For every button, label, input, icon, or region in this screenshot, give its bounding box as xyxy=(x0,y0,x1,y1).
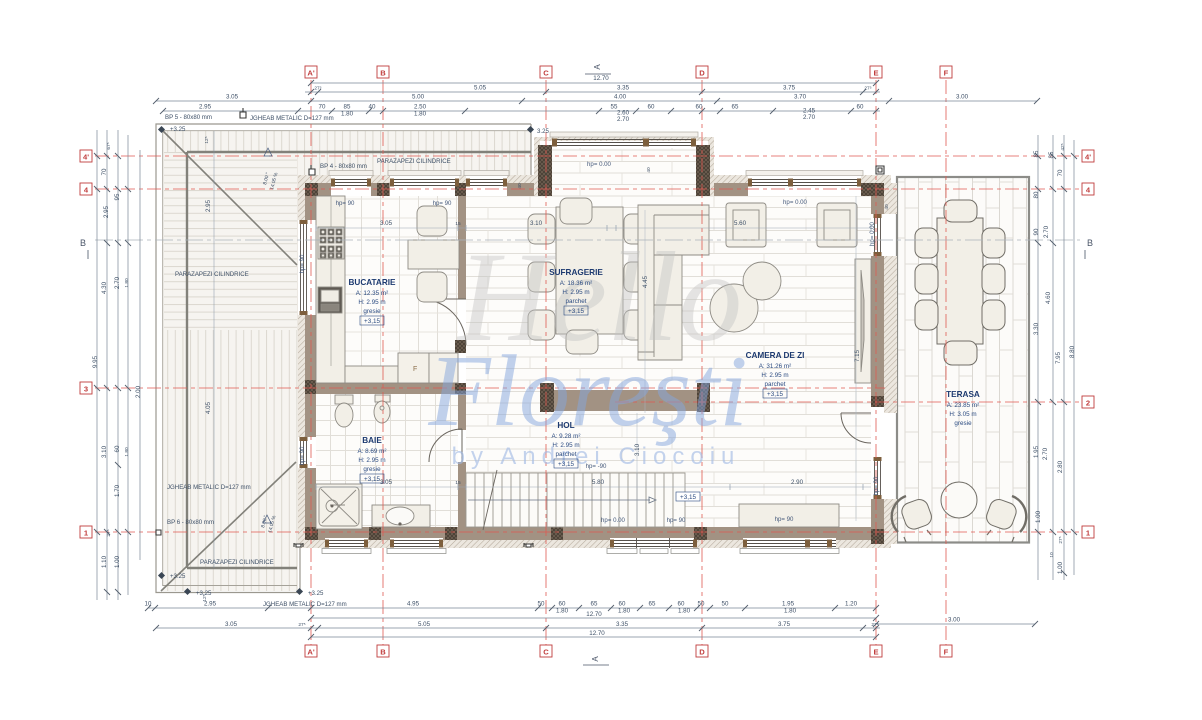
svg-text:4.95: 4.95 xyxy=(407,601,420,608)
svg-text:70: 70 xyxy=(319,104,326,111)
svg-text:hp= 0.00: hp= 0.00 xyxy=(869,221,876,246)
svg-text:3.05: 3.05 xyxy=(225,621,238,628)
svg-text:HOL: HOL xyxy=(557,421,574,430)
svg-text:1.80: 1.80 xyxy=(678,608,691,615)
svg-text:hp= 90: hp= 90 xyxy=(299,254,306,273)
svg-text:parchet: parchet xyxy=(555,451,576,458)
svg-text:+3,15: +3,15 xyxy=(767,391,783,398)
svg-text:F: F xyxy=(944,648,949,657)
svg-text:3.05: 3.05 xyxy=(380,479,393,486)
svg-text:3: 3 xyxy=(84,385,88,394)
svg-text:4.05: 4.05 xyxy=(205,401,212,414)
svg-text:7.95: 7.95 xyxy=(1055,351,1062,364)
svg-text:60: 60 xyxy=(619,601,626,608)
svg-text:3.00: 3.00 xyxy=(956,94,969,101)
svg-text:50: 50 xyxy=(538,601,545,608)
svg-text:4.00: 4.00 xyxy=(614,94,627,101)
svg-text:2.95: 2.95 xyxy=(204,601,217,608)
svg-text:27⁵: 27⁵ xyxy=(864,86,871,92)
svg-text:1.80: 1.80 xyxy=(556,608,569,615)
svg-text:+3,15: +3,15 xyxy=(680,494,696,501)
svg-text:2.80: 2.80 xyxy=(1057,460,1064,473)
svg-text:60: 60 xyxy=(114,445,121,452)
svg-text:parchet: parchet xyxy=(764,381,785,388)
svg-text:40: 40 xyxy=(884,204,890,210)
svg-text:10: 10 xyxy=(1049,552,1055,558)
svg-text:H: 2.95 m: H: 2.95 m xyxy=(761,372,788,379)
svg-text:2.95: 2.95 xyxy=(103,205,110,218)
svg-text:H: 2.95 m: H: 2.95 m xyxy=(358,299,385,306)
svg-text:4.30: 4.30 xyxy=(101,281,108,294)
svg-text:JGHEAB METALIC D=127 mm: JGHEAB METALIC D=127 mm xyxy=(250,115,334,122)
svg-text:hp= 90: hp= 90 xyxy=(299,446,306,465)
svg-text:1.80: 1.80 xyxy=(618,608,631,615)
svg-text:5.05: 5.05 xyxy=(474,85,487,92)
svg-text:E: E xyxy=(873,648,878,657)
svg-text:TERASA: TERASA xyxy=(946,390,980,399)
svg-text:CAMERA DE ZI: CAMERA DE ZI xyxy=(746,351,805,360)
svg-text:A: A xyxy=(593,64,602,70)
svg-text:50: 50 xyxy=(722,601,729,608)
svg-text:12.70: 12.70 xyxy=(589,630,605,637)
svg-text:27⁵: 27⁵ xyxy=(1058,536,1064,543)
svg-text:H: 2.95 m: H: 2.95 m xyxy=(358,457,385,464)
svg-text:85: 85 xyxy=(1033,150,1040,157)
svg-text:2.70: 2.70 xyxy=(1043,225,1050,238)
svg-text:1.95: 1.95 xyxy=(782,601,795,608)
svg-text:hp= 90: hp= 90 xyxy=(336,200,355,207)
svg-text:hp= 90: hp= 90 xyxy=(667,517,686,524)
svg-text:40: 40 xyxy=(369,104,376,111)
svg-text:27⁵: 27⁵ xyxy=(314,86,321,92)
svg-text:SUFRAGERIE: SUFRAGERIE xyxy=(549,268,603,277)
svg-text:D: D xyxy=(699,648,705,657)
svg-text:2: 2 xyxy=(1086,399,1090,408)
svg-text:hp= 0.00: hp= 0.00 xyxy=(587,161,612,168)
svg-text:A: A xyxy=(591,656,600,662)
svg-text:B: B xyxy=(380,648,386,657)
svg-text:2.50: 2.50 xyxy=(414,104,427,111)
svg-text:60: 60 xyxy=(559,601,566,608)
svg-text:1.00: 1.00 xyxy=(114,555,121,568)
svg-text:9.95: 9.95 xyxy=(92,355,99,368)
svg-text:PARAZAPEZI CILINDRICE: PARAZAPEZI CILINDRICE xyxy=(377,158,451,165)
svg-text:1.80: 1.80 xyxy=(784,608,797,615)
svg-text:15: 15 xyxy=(455,480,461,486)
svg-text:gresie: gresie xyxy=(363,466,381,473)
svg-text:B: B xyxy=(80,238,86,248)
svg-text:+3,15: +3,15 xyxy=(558,461,574,468)
svg-text:+3,15: +3,15 xyxy=(364,318,380,325)
svg-text:40: 40 xyxy=(517,183,523,189)
svg-text:8.80: 8.80 xyxy=(1069,345,1076,358)
svg-text:+3.25: +3.25 xyxy=(170,126,186,133)
svg-text:B: B xyxy=(1087,238,1093,248)
svg-text:A: 23.85 m²: A: 23.85 m² xyxy=(947,402,980,409)
svg-text:12.70: 12.70 xyxy=(586,611,602,618)
svg-text:2.70: 2.70 xyxy=(803,114,816,121)
svg-text:3.25: 3.25 xyxy=(537,128,549,135)
svg-text:4': 4' xyxy=(83,153,89,162)
svg-text:1.20: 1.20 xyxy=(845,601,858,608)
svg-text:C: C xyxy=(543,69,549,78)
svg-text:hp= -90: hp= -90 xyxy=(586,463,607,470)
svg-text:60: 60 xyxy=(696,104,703,111)
svg-text:85: 85 xyxy=(344,104,351,111)
svg-text:+3.25: +3.25 xyxy=(170,573,186,580)
svg-text:hp= 90: hp= 90 xyxy=(433,200,452,207)
svg-text:60: 60 xyxy=(857,104,864,111)
svg-text:C: C xyxy=(543,648,549,657)
svg-text:H: 2.95 m: H: 2.95 m xyxy=(562,289,589,296)
svg-text:60: 60 xyxy=(678,601,685,608)
svg-text:F: F xyxy=(944,69,949,78)
svg-text:A: 12.35 m²: A: 12.35 m² xyxy=(356,290,389,297)
svg-text:7.15: 7.15 xyxy=(854,349,861,362)
svg-text:2.00: 2.00 xyxy=(135,385,142,398)
svg-text:3.35: 3.35 xyxy=(617,85,630,92)
svg-text:3.75: 3.75 xyxy=(778,621,791,628)
svg-text:E: E xyxy=(873,69,878,78)
svg-text:A: 8.69 m²: A: 8.69 m² xyxy=(357,448,386,455)
svg-text:gresie: gresie xyxy=(363,308,381,315)
svg-text:gresie: gresie xyxy=(954,420,972,427)
svg-text:BP 6 - 80x80 mm: BP 6 - 80x80 mm xyxy=(167,519,214,526)
svg-text:parchet: parchet xyxy=(565,298,586,305)
svg-text:50: 50 xyxy=(698,601,705,608)
svg-text:90: 90 xyxy=(1033,228,1040,235)
svg-text:3.00: 3.00 xyxy=(948,617,961,624)
svg-text:80: 80 xyxy=(1033,191,1040,198)
svg-text:H: 3.05 m: H: 3.05 m xyxy=(949,411,976,418)
svg-text:70: 70 xyxy=(101,168,108,175)
svg-text:BP 4 - 80x80 mm: BP 4 - 80x80 mm xyxy=(320,163,367,170)
svg-text:65: 65 xyxy=(649,601,656,608)
svg-text:BP 5 - 80x80 mm: BP 5 - 80x80 mm xyxy=(165,114,212,121)
svg-text:hp= 90: hp= 90 xyxy=(775,516,794,523)
svg-text:40: 40 xyxy=(646,167,652,173)
svg-text:1.70: 1.70 xyxy=(114,484,121,497)
svg-text:Floreşti: Floreşti xyxy=(427,335,747,448)
svg-text:PARAZAPEZI CILINDRICE: PARAZAPEZI CILINDRICE xyxy=(200,559,274,566)
svg-text:27⁵: 27⁵ xyxy=(871,622,878,628)
svg-text:+3.25: +3.25 xyxy=(308,590,324,597)
svg-text:JGHEAB METALIC D=127 mm: JGHEAB METALIC D=127 mm xyxy=(167,484,251,491)
svg-text:hp= 90: hp= 90 xyxy=(873,476,880,495)
svg-text:1.80: 1.80 xyxy=(124,278,130,288)
svg-text:A: 18.36 m²: A: 18.36 m² xyxy=(560,280,593,287)
svg-text:12.70: 12.70 xyxy=(593,75,609,82)
svg-text:65: 65 xyxy=(732,104,739,111)
svg-text:5.60: 5.60 xyxy=(734,220,747,227)
svg-text:27⁵: 27⁵ xyxy=(106,529,112,536)
svg-text:27⁵: 27⁵ xyxy=(298,622,305,628)
svg-text:3.05: 3.05 xyxy=(380,220,393,227)
svg-text:3.10: 3.10 xyxy=(634,443,641,456)
svg-text:4': 4' xyxy=(1085,153,1091,162)
svg-text:BUCATARIE: BUCATARIE xyxy=(349,278,397,287)
svg-text:5.05: 5.05 xyxy=(418,621,431,628)
svg-text:BAIE: BAIE xyxy=(362,436,382,445)
svg-text:JGHEAB METALIC D=127 mm: JGHEAB METALIC D=127 mm xyxy=(263,601,347,608)
svg-text:A: 31.26 m²: A: 31.26 m² xyxy=(759,363,792,370)
svg-text:3.10: 3.10 xyxy=(530,220,543,227)
svg-text:D: D xyxy=(699,69,705,78)
svg-text:A': A' xyxy=(307,648,314,657)
svg-text:15: 15 xyxy=(455,221,461,227)
svg-text:+3,15: +3,15 xyxy=(568,308,584,315)
svg-text:3.35: 3.35 xyxy=(616,621,629,628)
svg-text:1.00: 1.00 xyxy=(1057,561,1064,574)
svg-text:2.70: 2.70 xyxy=(617,116,630,123)
svg-text:hp= 0.00: hp= 0.00 xyxy=(783,199,808,206)
svg-text:2.70: 2.70 xyxy=(1042,447,1049,460)
svg-text:F: F xyxy=(413,366,417,373)
svg-text:4.45: 4.45 xyxy=(642,275,649,288)
svg-text:5.00: 5.00 xyxy=(412,94,425,101)
svg-text:42⁵: 42⁵ xyxy=(1060,143,1066,150)
svg-text:67⁵: 67⁵ xyxy=(106,142,112,149)
svg-text:hp= 0.00: hp= 0.00 xyxy=(601,517,626,524)
svg-text:3.70: 3.70 xyxy=(794,94,807,101)
svg-text:1.10: 1.10 xyxy=(101,555,108,568)
svg-text:12⁵: 12⁵ xyxy=(204,136,210,143)
svg-text:3.05: 3.05 xyxy=(226,94,239,101)
svg-text:A: 9.28 m²: A: 9.28 m² xyxy=(551,433,580,440)
svg-text:+3.25: +3.25 xyxy=(196,590,212,597)
svg-text:A': A' xyxy=(307,69,314,78)
svg-text:1.80: 1.80 xyxy=(414,111,427,118)
svg-text:1.00: 1.00 xyxy=(1035,510,1042,523)
svg-text:2.90: 2.90 xyxy=(791,479,804,486)
svg-text:2.95: 2.95 xyxy=(199,104,212,111)
svg-text:2.70: 2.70 xyxy=(114,276,121,289)
svg-text:1.80: 1.80 xyxy=(341,111,354,118)
svg-text:60: 60 xyxy=(648,104,655,111)
svg-text:10: 10 xyxy=(145,601,152,608)
svg-text:65: 65 xyxy=(591,601,598,608)
svg-text:3.10: 3.10 xyxy=(101,445,108,458)
svg-text:2.95: 2.95 xyxy=(205,199,212,212)
svg-text:3.30: 3.30 xyxy=(1033,322,1040,335)
svg-text:70: 70 xyxy=(1057,169,1064,176)
svg-text:PARAZAPEZI CILINDRICE: PARAZAPEZI CILINDRICE xyxy=(175,271,249,278)
svg-text:3.75: 3.75 xyxy=(783,85,796,92)
svg-text:85: 85 xyxy=(1048,151,1055,158)
svg-text:5.80: 5.80 xyxy=(592,479,605,486)
svg-text:+3,15: +3,15 xyxy=(364,476,380,483)
svg-text:95: 95 xyxy=(114,193,121,200)
svg-text:1.95: 1.95 xyxy=(1033,445,1040,458)
svg-text:4.60: 4.60 xyxy=(1045,291,1052,304)
svg-text:B: B xyxy=(380,69,386,78)
svg-text:1.80: 1.80 xyxy=(124,447,130,457)
svg-text:H: 2.95 m: H: 2.95 m xyxy=(552,442,579,449)
